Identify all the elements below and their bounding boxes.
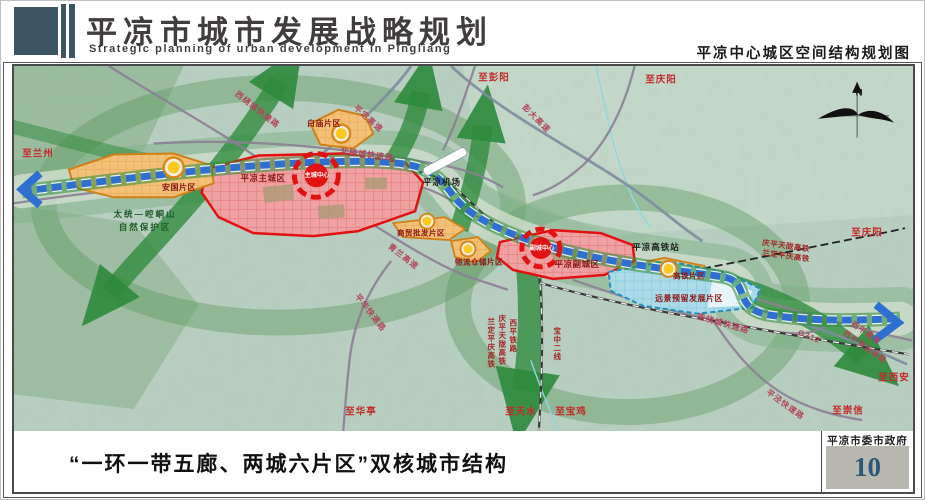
map-label: 兰定平庆高铁 <box>487 318 495 369</box>
map-label: 西绕城快速路 <box>233 90 280 130</box>
logo-bar-icon <box>69 4 75 58</box>
map-label: 主城中心 <box>305 173 330 179</box>
map-label: G312 <box>797 329 822 345</box>
page-number: 10 <box>854 452 881 483</box>
header: 平凉市城市发展战略规划 Strategic planning of urban … <box>1 1 925 62</box>
map-label: 平凉主城区 <box>240 174 285 183</box>
map-label: 至宝鸡 <box>555 407 587 417</box>
map-label: 南绕城快速路 <box>696 313 750 336</box>
map-label: 至庆阳 <box>851 228 883 238</box>
map-label: 高铁片区 <box>673 272 705 280</box>
logo-block <box>14 7 58 55</box>
map-label: 平凉高铁站 <box>632 243 680 252</box>
planning-document-page: 平凉市城市发展战略规划 Strategic planning of urban … <box>0 0 925 500</box>
map-label: 平华快速路 <box>353 293 387 333</box>
map-label: N <box>856 88 863 98</box>
planning-map: 至兰州至彭阳至庆阳至庆阳至西安至崇信至华亭至天水至宝鸡西绕城快速路平定高速彭大高… <box>12 64 915 433</box>
map-label: 自然保护区 <box>119 223 172 232</box>
map-label: 安国片区 <box>162 184 196 192</box>
map-label: 至天水 <box>505 407 537 417</box>
page-subtitle: Strategic planning of urban development … <box>89 43 452 55</box>
map-label: 平定高速 <box>352 104 384 134</box>
map-label: 彭大高速 <box>520 103 551 134</box>
map-label: 商贸批发片区 <box>397 229 445 237</box>
agency-box: 平凉市委市政府 10 <box>821 431 913 492</box>
map-label: 太统—崆峒山 <box>113 210 176 219</box>
page-number-box: 10 <box>826 446 909 489</box>
logo-bar-icon <box>61 4 66 58</box>
footer-bar: “一环一带五廊、两城六片区”双核城市结构 平凉市委市政府 10 <box>12 431 915 494</box>
map-label: 白庙片区 <box>307 120 341 128</box>
map-caption: 平凉中心城区空间结构规划图 <box>697 42 912 63</box>
map-label: 西平铁路 <box>509 319 517 353</box>
map-label: 远景预留发展片区 <box>655 295 723 303</box>
map-label: 庆平天陇高铁 <box>498 315 506 366</box>
map-label: 平泾快速路 <box>764 389 805 422</box>
map-label: 副城中心 <box>530 246 555 252</box>
map-label: 至彭阳 <box>478 73 510 83</box>
map-label: 至华亭 <box>345 407 377 417</box>
structure-caption: “一环一带五廊、两城六片区”双核城市结构 <box>69 448 508 478</box>
map-label: 至兰州 <box>22 149 54 159</box>
map-label: 北绕城快速路 <box>340 147 395 162</box>
map-label: 至庆阳 <box>645 75 677 85</box>
map-label: 宝中二线 <box>553 327 561 361</box>
map-label: 至崇信 <box>832 406 864 416</box>
map-label: 物流仓储片区 <box>455 258 503 266</box>
map-label: 平凉机场 <box>423 178 461 187</box>
map-label: 至西安 <box>878 373 910 383</box>
map-label-layer: 至兰州至彭阳至庆阳至庆阳至西安至崇信至华亭至天水至宝鸡西绕城快速路平定高速彭大高… <box>14 66 913 431</box>
map-label: 平凉副城区 <box>554 260 599 269</box>
map-label: 青兰高速 <box>386 243 419 271</box>
